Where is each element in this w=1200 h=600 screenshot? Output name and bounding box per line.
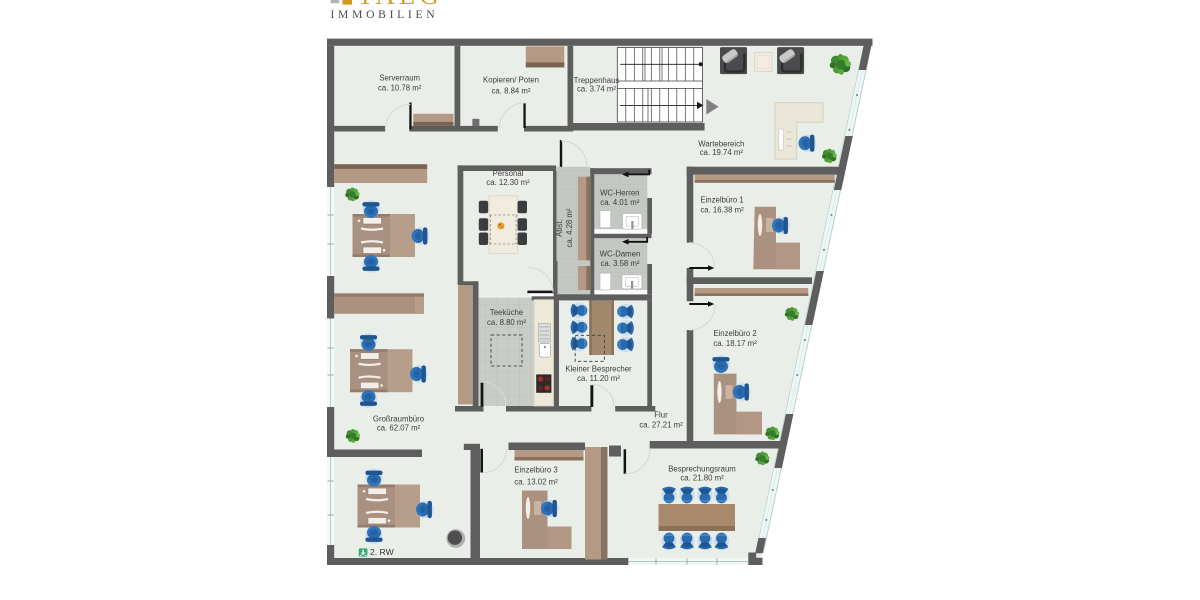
svg-text:ca. 3.58 m²: ca. 3.58 m² <box>601 259 640 268</box>
svg-text:ca. 10.78 m²: ca. 10.78 m² <box>378 84 422 93</box>
svg-text:Kopieren/ Poten: Kopieren/ Poten <box>483 76 539 85</box>
svg-text:ca. 27.21 m²: ca. 27.21 m² <box>639 421 683 430</box>
svg-text:ca. 11.20 m²: ca. 11.20 m² <box>577 374 620 383</box>
svg-text:Personal: Personal <box>493 169 524 178</box>
svg-text:ca. 16.38 m²: ca. 16.38 m² <box>700 206 744 215</box>
svg-text:Flur: Flur <box>654 411 668 420</box>
svg-text:ca. 8.84 m²: ca. 8.84 m² <box>492 87 531 96</box>
svg-text:Einzelbüro 2: Einzelbüro 2 <box>713 329 756 338</box>
svg-text:Großraumbüro: Großraumbüro <box>373 415 425 424</box>
svg-text:Kleiner Besprecher: Kleiner Besprecher <box>565 365 632 374</box>
svg-text:ca. 18.17 m²: ca. 18.17 m² <box>713 339 757 348</box>
svg-text:WC-Damen: WC-Damen <box>600 250 641 259</box>
svg-text:ca. 62.07 m²: ca. 62.07 m² <box>377 424 421 433</box>
svg-text:ca. 3.74 m²: ca. 3.74 m² <box>577 85 616 94</box>
svg-text:Besprechungsraum: Besprechungsraum <box>668 465 736 474</box>
svg-text:ca. 4.28 m²: ca. 4.28 m² <box>565 208 574 247</box>
svg-text:Teeküche: Teeküche <box>490 308 523 317</box>
svg-text:WC-Herren: WC-Herren <box>600 189 639 198</box>
svg-text:IMMOBILIEN: IMMOBILIEN <box>331 8 439 21</box>
svg-text:2. RW: 2. RW <box>370 547 395 557</box>
svg-text:ca. 19.74 m²: ca. 19.74 m² <box>700 148 744 157</box>
svg-text:Serverraum: Serverraum <box>379 74 420 83</box>
svg-text:ca. 12.30 m²: ca. 12.30 m² <box>486 178 530 187</box>
svg-text:Abst.: Abst. <box>555 219 564 237</box>
svg-text:Einzelbüro 1: Einzelbüro 1 <box>700 196 743 205</box>
svg-text:Einzelbüro 3: Einzelbüro 3 <box>514 466 557 475</box>
svg-text:ca. 4.01 m²: ca. 4.01 m² <box>600 198 639 207</box>
svg-text:ca. 8.80 m²: ca. 8.80 m² <box>487 318 526 327</box>
svg-text:ca. 21.80 m²: ca. 21.80 m² <box>680 474 724 483</box>
svg-text:ca. 13.02 m²: ca. 13.02 m² <box>514 478 558 487</box>
